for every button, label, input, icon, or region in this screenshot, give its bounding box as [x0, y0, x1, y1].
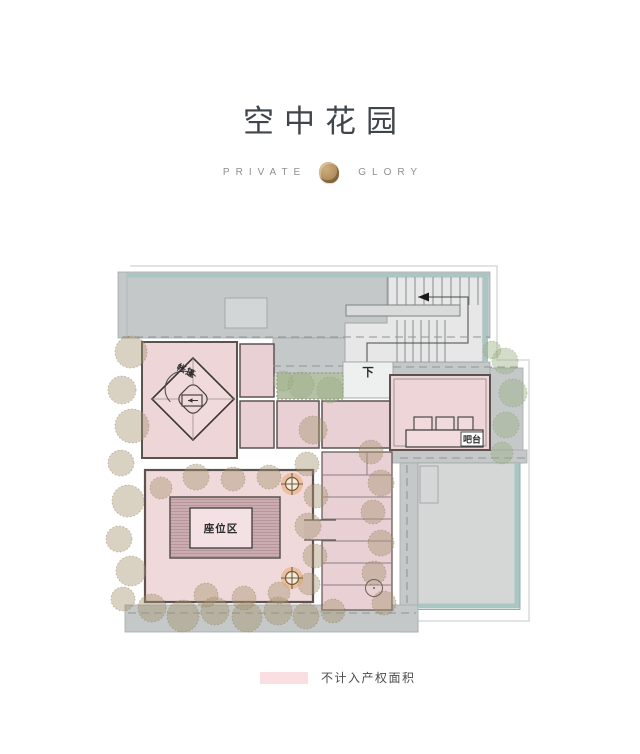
teal-edge-top — [127, 273, 489, 278]
bar-stools — [414, 417, 473, 430]
sky-garden-plan-page: 空中花园 PRIVATE GLORY — [0, 0, 640, 754]
roof-inset-rect — [225, 298, 267, 328]
torch-icon-bottom — [281, 567, 303, 589]
seating-label: 座位区 — [203, 522, 239, 535]
floor-plan: 下 — [0, 0, 640, 754]
down-label: 下 — [362, 366, 374, 379]
legend-swatch — [260, 672, 308, 684]
small-room-2 — [240, 401, 274, 448]
bar-label: 吧台 — [463, 434, 481, 445]
legend: 不计入产权面积 — [260, 669, 416, 686]
small-room-1 — [240, 344, 274, 397]
torch-icon-top — [281, 473, 303, 495]
bar-room: 吧台 — [390, 375, 490, 450]
legend-label: 不计入产权面积 — [321, 669, 416, 686]
small-room-4 — [322, 401, 391, 448]
lower-roof-terrace — [418, 463, 520, 610]
